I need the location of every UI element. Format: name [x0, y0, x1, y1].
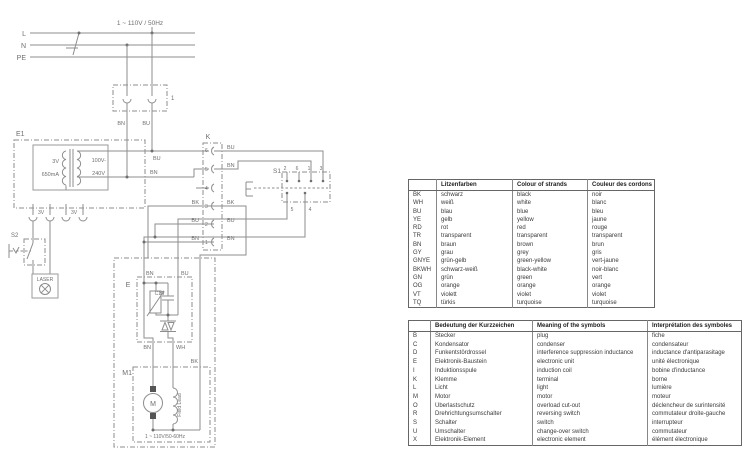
table-cell: Überlastschutz [431, 402, 533, 411]
table-cell: RD [409, 224, 437, 232]
table-row: KKlemmeterminalborne [409, 376, 742, 385]
s1-terminal-number: 4 [309, 207, 312, 213]
table-cell: blue [513, 208, 588, 216]
table-cell: rouge [588, 224, 655, 232]
table-cell: turquoise [513, 299, 588, 308]
table-cell: plug [533, 332, 648, 341]
table-cell: Funkentstördrossel [431, 349, 533, 358]
table-row: XElektronik-Elementelectronic elementélé… [409, 436, 742, 445]
table-cell: borne [648, 376, 742, 385]
table-row: BSteckerplugfiche [409, 332, 742, 341]
s1-terminal-number: 2 [284, 166, 287, 172]
table-row: UUmschalterchange-over switchcommutateur [409, 428, 742, 437]
table-cell: unité électronique [648, 358, 742, 367]
wire-bu-label: BU [181, 271, 189, 277]
table-cell: light [533, 384, 648, 393]
table-cell: yellow [513, 216, 588, 224]
s2-label: S2 [11, 233, 19, 239]
motor-rating-label: 1 ~ 110V/50-60Hz [145, 434, 186, 440]
table-row: CKondensatorcondensercondensateur [409, 341, 742, 350]
table-row: WHweißwhiteblanc [409, 199, 655, 207]
wire-bk-label: BK [191, 359, 199, 365]
table-cell: BN [409, 241, 437, 249]
k-terminal-number: 2 [205, 222, 208, 228]
c1-label: C1 [155, 291, 162, 297]
wire-bn-label: BN [143, 345, 151, 351]
column-header [409, 321, 431, 332]
table-row: IInduktionsspuleinduction coilbobine d'i… [409, 367, 742, 376]
table-cell: blanc [588, 199, 655, 207]
wire-bn-label: BN [227, 163, 235, 169]
table-cell: TR [409, 232, 437, 240]
table-cell: schwarz-weiß [437, 266, 513, 274]
table-row: SSchalterswitchinterrupteur [409, 419, 742, 428]
table-cell: gelb [437, 216, 513, 224]
table-cell: lumière [648, 384, 742, 393]
m1-label: M1 [122, 370, 132, 377]
table-cell: Licht [431, 384, 533, 393]
circuit-diagram: 1 ~ 110V / 50Hz L N PE 1 BN BU E1 3V 650… [0, 0, 405, 462]
table-row: EElektronik-Bausteinelectronic unitunité… [409, 358, 742, 367]
table-cell: E [409, 358, 431, 367]
table-cell: electronic unit [533, 358, 648, 367]
table-row: YEgelbyellowjaune [409, 216, 655, 224]
table-cell: Motor [431, 393, 533, 402]
table-cell: interrupteur [648, 419, 742, 428]
wiring-diagram-page: 1 ~ 110V / 50Hz L N PE 1 BN BU E1 3V 650… [0, 0, 750, 462]
table-cell: noir [588, 191, 655, 200]
table-cell: S [409, 419, 431, 428]
table-row: RDrotredrouge [409, 224, 655, 232]
table-cell: BK [409, 191, 437, 200]
table-cell: GY [409, 249, 437, 257]
table-cell: moteur [648, 393, 742, 402]
plug-voltage-label: 3V [38, 210, 45, 216]
table-cell: türkis [437, 299, 513, 308]
table-cell: brun [588, 241, 655, 249]
strand-colors-table: LitzenfarbenColour of strandsCouleur des… [408, 179, 655, 308]
table-cell: black-white [513, 266, 588, 274]
e1-label: E1 [16, 131, 25, 138]
k-terminal-number: 4 [205, 186, 208, 192]
line-n-label: N [21, 43, 26, 50]
table-cell: B [409, 332, 431, 341]
column-header: Couleur des cordons [588, 180, 655, 191]
table-cell: grau [437, 249, 513, 257]
e-electronic-block [137, 277, 192, 388]
table-cell: élément électronique [648, 436, 742, 445]
table-cell: black [513, 191, 588, 200]
table-cell: BKWH [409, 266, 437, 274]
table-cell: grün [437, 274, 513, 282]
table-cell: Elektronik-Element [431, 436, 533, 445]
table-cell: TQ [409, 299, 437, 308]
wire-bk-label: BK [227, 200, 235, 206]
table-cell: gris [588, 249, 655, 257]
table-cell: M [409, 393, 431, 402]
table-cell: violet [588, 291, 655, 299]
table-cell: C [409, 341, 431, 350]
table-cell: Umschalter [431, 428, 533, 437]
table-cell: weiß [437, 199, 513, 207]
k-label: K [206, 134, 211, 141]
table-cell: vert [588, 274, 655, 282]
table-cell: violett [437, 291, 513, 299]
e1-power-supply-block [14, 125, 209, 208]
s1-terminal-number: 6 [296, 166, 299, 172]
table-cell: interference suppression inductance [533, 349, 648, 358]
table-cell: Schalter [431, 419, 533, 428]
m1-motor-block [133, 367, 210, 442]
interconnect-wires [143, 151, 324, 430]
plug-voltage-label: 3V [71, 210, 78, 216]
table-row: BKschwarzblacknoir [409, 191, 655, 200]
table-cell: Drehrichtungsumschalter [431, 410, 533, 419]
secondary-current-label: 650mA [42, 172, 60, 178]
table-cell: transparent [437, 232, 513, 240]
table-cell: orange [588, 282, 655, 290]
table-cell: braun [437, 241, 513, 249]
table-cell: green-yellow [513, 257, 588, 265]
symbol-legend-table: Bedeutung der KurzzeichenMeaning of the … [408, 320, 742, 446]
table-cell: transparent [588, 232, 655, 240]
table-cell: Stecker [431, 332, 533, 341]
wire-bu-label: BU [153, 156, 161, 162]
table-row: BUblaubluebleu [409, 208, 655, 216]
table-cell: Induktionsspule [431, 367, 533, 376]
k-terminal-number: 6 [205, 148, 208, 154]
table-row: GNgrüngreenvert [409, 274, 655, 282]
field-lead-label: Field Lead [177, 393, 183, 417]
table-row: LLichtlightlumière [409, 384, 742, 393]
table-row: MMotormotormoteur [409, 393, 742, 402]
table-cell: white [513, 199, 588, 207]
table-cell: K [409, 376, 431, 385]
table-cell: brown [513, 241, 588, 249]
table-cell: noir-blanc [588, 266, 655, 274]
table-cell: orange [437, 282, 513, 290]
table-cell: déclencheur de surintensité [648, 402, 742, 411]
table-cell: vert-jaune [588, 257, 655, 265]
column-header: Colour of strands [513, 180, 588, 191]
table-cell: commutateur droite-gauche [648, 410, 742, 419]
column-header: Litzenfarben [437, 180, 513, 191]
table-cell: Elektronik-Baustein [431, 358, 533, 367]
supply-rating-label: 1 ~ 110V / 50Hz [117, 20, 163, 27]
table-cell: VT [409, 291, 437, 299]
wire-bn-label: BN [146, 271, 154, 277]
wire-bn-label: BN [117, 121, 125, 127]
table-cell: rot [437, 224, 513, 232]
table-cell: red [513, 224, 588, 232]
wire-bu-label: BU [142, 121, 150, 127]
table-row: GYgraugreygris [409, 249, 655, 257]
mains-connector-symbol [113, 33, 167, 152]
table-cell: reversing switch [533, 410, 648, 419]
table-cell: overload cut-out [533, 402, 648, 411]
line-pe-label: PE [17, 55, 27, 62]
table-cell: commutateur [648, 428, 742, 437]
table-cell: violet [513, 291, 588, 299]
line-l-label: L [22, 31, 26, 38]
table-cell: orange [513, 282, 588, 290]
table-cell: schwarz [437, 191, 513, 200]
table-cell: BU [409, 208, 437, 216]
column-header [409, 180, 437, 191]
table-row: OÜberlastschutzoverload cut-outdéclenche… [409, 402, 742, 411]
mains-lines [30, 27, 195, 57]
k-terminal-number: 1 [205, 240, 208, 246]
column-header: Meaning of the symbols [533, 321, 648, 332]
s1-terminal-number: 1 [308, 166, 311, 172]
table-cell: grün-gelb [437, 257, 513, 265]
column-header: Bedeutung der Kurzzeichen [431, 321, 533, 332]
laser-label: LASER [37, 277, 54, 283]
wire-bn-label: BN [150, 170, 158, 176]
secondary-voltage-label: 3V [52, 159, 59, 165]
table-cell: YE [409, 216, 437, 224]
table-cell: L [409, 384, 431, 393]
table-cell: change-over switch [533, 428, 648, 437]
s1-label: S1 [273, 168, 281, 175]
wire-bk-label: BK [192, 200, 200, 206]
table-cell: D [409, 349, 431, 358]
table-cell: Klemme [431, 376, 533, 385]
k-terminal-strip [196, 143, 222, 250]
table-cell: fiche [648, 332, 742, 341]
s1-switch-symbol [246, 172, 330, 202]
table-row: VTviolettvioletviolet [409, 291, 655, 299]
table-row: DFunkentstördrosselinterference suppress… [409, 349, 742, 358]
table-cell: WH [409, 199, 437, 207]
table-cell: Kondensator [431, 341, 533, 350]
table-cell: GNYE [409, 257, 437, 265]
table-cell: bobine d'inductance [648, 367, 742, 376]
primary-min-label: 100V- [92, 158, 107, 164]
connector1-label: 1 [171, 96, 175, 102]
table-cell: electronic element [533, 436, 648, 445]
s1-terminal-number: 5 [291, 207, 294, 213]
s2-switch-symbol [9, 239, 45, 274]
table-cell: transparent [513, 232, 588, 240]
table-cell: induction coil [533, 367, 648, 376]
table-row: OGorangeorangeorange [409, 282, 655, 290]
table-row: RDrehrichtungsumschalterreversing switch… [409, 410, 742, 419]
table-cell: R [409, 410, 431, 419]
table-cell: green [513, 274, 588, 282]
table-cell: bleu [588, 208, 655, 216]
table-cell: O [409, 402, 431, 411]
wire-wh-label: WH [176, 345, 185, 351]
column-header: Interprétation des symboles [648, 321, 742, 332]
table-cell: I [409, 367, 431, 376]
primary-max-label: 240V [92, 171, 105, 177]
s1-terminal-number: 3 [320, 166, 323, 172]
table-row: BKWHschwarz-weißblack-whitenoir-blanc [409, 266, 655, 274]
table-cell: inductance d'antiparasitage [648, 349, 742, 358]
wire-bu-label: BU [227, 145, 235, 151]
table-row: TRtransparenttransparenttransparent [409, 232, 655, 240]
table-cell: condensateur [648, 341, 742, 350]
table-cell: grey [513, 249, 588, 257]
table-cell: terminal [533, 376, 648, 385]
table-cell: U [409, 428, 431, 437]
table-cell: turquoise [588, 299, 655, 308]
table-cell: X [409, 436, 431, 445]
table-row: GNYEgrün-gelbgreen-yellowvert-jaune [409, 257, 655, 265]
table-row: TQtürkisturquoiseturquoise [409, 299, 655, 308]
motor-label: M [150, 401, 156, 408]
table-row: BNbraunbrownbrun [409, 241, 655, 249]
table-cell: GN [409, 274, 437, 282]
table-cell: blau [437, 208, 513, 216]
e-block-label: E [126, 282, 131, 289]
table-cell: OG [409, 282, 437, 290]
table-cell: condenser [533, 341, 648, 350]
k-terminal-number: 5 [205, 167, 208, 173]
table-cell: motor [533, 393, 648, 402]
k-terminal-number: 3 [205, 204, 208, 210]
table-cell: jaune [588, 216, 655, 224]
table-cell: switch [533, 419, 648, 428]
